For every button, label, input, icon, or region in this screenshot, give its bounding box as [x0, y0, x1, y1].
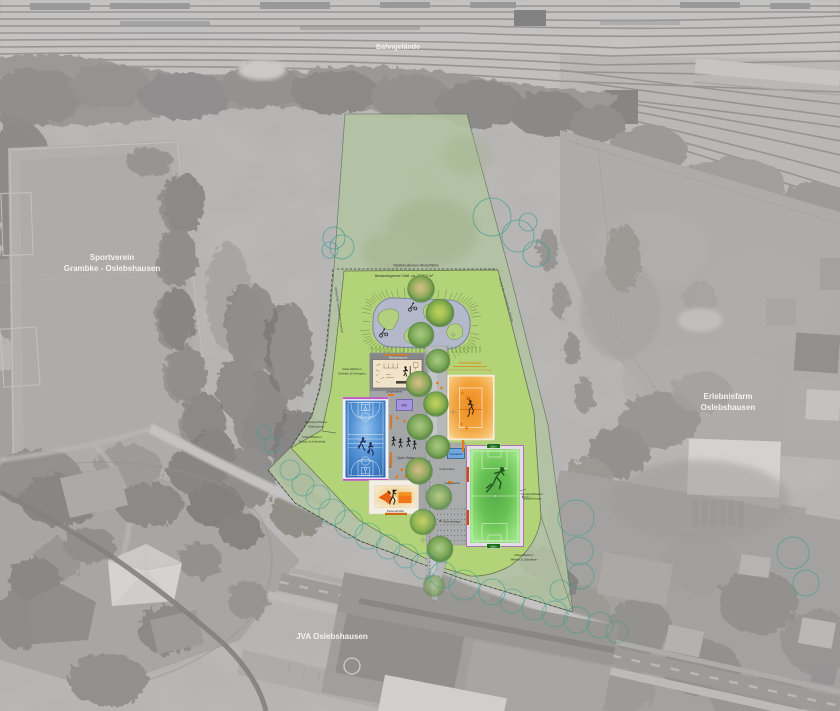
svg-text:Dirtbike & Anhügeln: Dirtbike & Anhügeln [338, 372, 365, 376]
svg-text:⇄ Stufenanlage: ⇄ Stufenanlage [439, 520, 461, 524]
svg-text:Erlebnisfarm: Erlebnisfarm [704, 392, 753, 401]
svg-text:Sportverein: Sportverein [90, 253, 135, 262]
svg-text:Bahngelände: Bahngelände [376, 44, 420, 51]
svg-text:Oslebshausen: Oslebshausen [701, 403, 756, 412]
svg-text:Hindernispark: Hindernispark [389, 356, 408, 360]
svg-text:Container: Container [449, 452, 462, 456]
svg-text:Rasenflächen: Rasenflächen [303, 435, 322, 439]
svg-text:Spielspezifische: Spielspezifische [305, 420, 327, 424]
svg-text:Grambke - Oslebshausen: Grambke - Oslebshausen [64, 264, 161, 273]
svg-text:Grün Oase: Grün Oase [439, 467, 454, 471]
svg-text:Rasenflächen: Rasenflächen [515, 553, 534, 557]
svg-text:Parkourbahn: Parkourbahn [387, 509, 405, 513]
svg-text:Mähen & Schnitteln: Mähen & Schnitteln [511, 558, 538, 562]
svg-text:Rasenflächen: Rasenflächen [343, 367, 362, 371]
svg-text:Nordteil extensive Wiesenfläch: Nordteil extensive Wiesenfläche [393, 264, 439, 268]
svg-text:WC: WC [402, 404, 408, 408]
svg-text:Erholz & Aufenthalt: Erholz & Aufenthalt [299, 440, 325, 444]
svg-text:Möblierung: Möblierung [308, 425, 324, 429]
svg-text:JVA Oslebshausen: JVA Oslebshausen [296, 632, 368, 641]
svg-text:Beachvolleyball: Beachvolleyball [459, 361, 482, 365]
svg-text:5x2m: 5x2m [490, 444, 497, 448]
svg-text:Liegedecks: Liegedecks [444, 481, 460, 485]
svg-text:5x2m: 5x2m [490, 545, 497, 549]
svg-text:Langhanteln: Langhanteln [386, 390, 403, 394]
svg-text:Kunststoffrasen: Kunststoffrasen [521, 492, 543, 496]
